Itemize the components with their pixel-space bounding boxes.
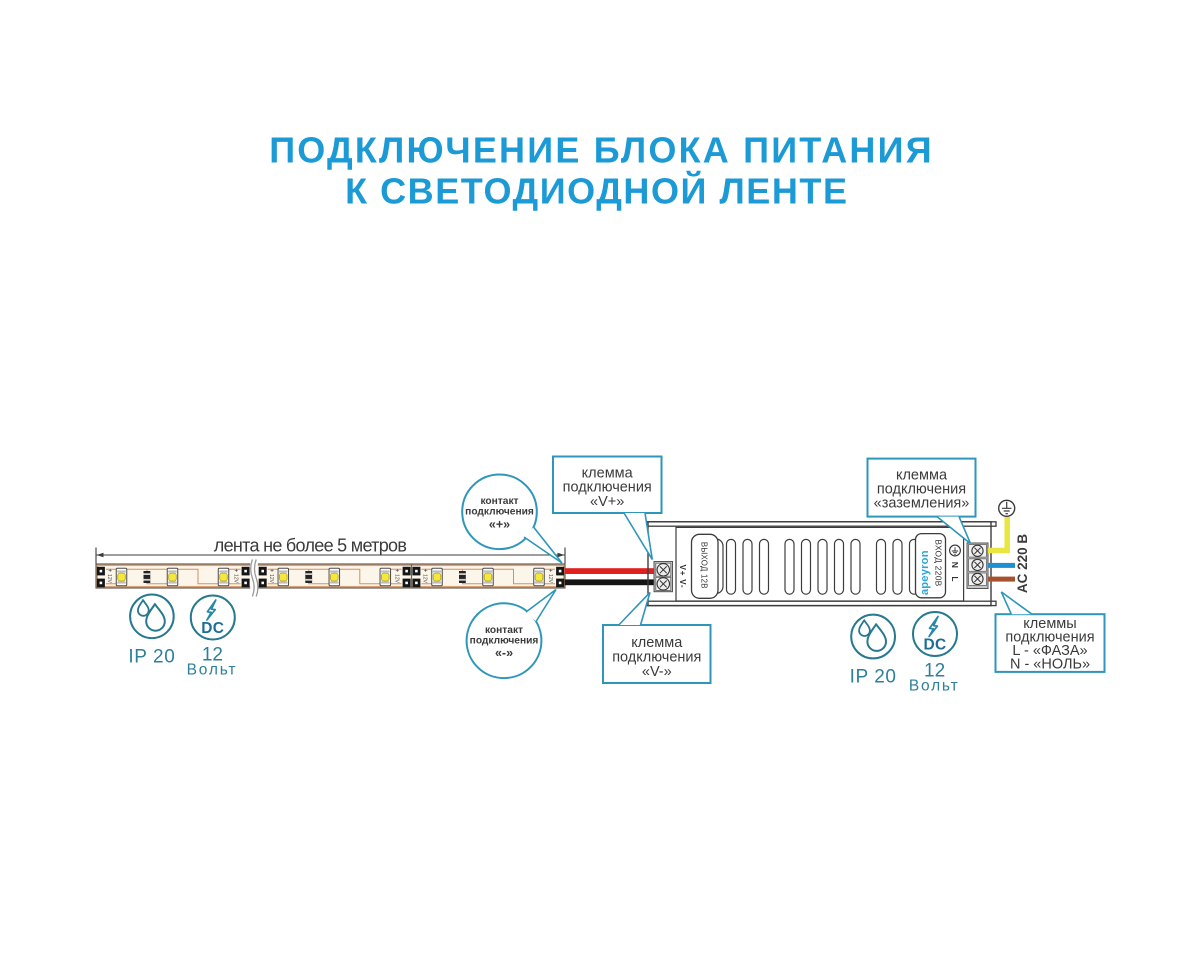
svg-text:12V: 12V [106, 574, 112, 584]
svg-text:12V: 12V [393, 574, 399, 584]
svg-text:контакт: контакт [480, 496, 518, 507]
svg-text:N: N [950, 562, 960, 568]
svg-text:L: L [950, 576, 960, 581]
svg-text:IP 20: IP 20 [128, 646, 175, 667]
svg-text:«V-»: «V-» [642, 664, 672, 680]
svg-text:ПОДКЛЮЧЕНИЕ БЛОКА ПИТАНИЯ: ПОДКЛЮЧЕНИЕ БЛОКА ПИТАНИЯ [269, 130, 934, 171]
svg-text:подключения: подключения [470, 635, 539, 646]
svg-text:12V: 12V [547, 574, 553, 584]
svg-text:IP 20: IP 20 [850, 666, 897, 687]
svg-text:V+ V-: V+ V- [678, 565, 687, 589]
svg-text:12V: 12V [268, 574, 274, 584]
svg-text:12V: 12V [422, 574, 428, 584]
svg-text:apeyron: apeyron [919, 550, 931, 595]
svg-text:подключения: подключения [465, 507, 534, 518]
svg-text:12V: 12V [232, 574, 238, 584]
svg-text:N - «НОЛЬ»: N - «НОЛЬ» [1010, 657, 1090, 673]
svg-text:ВХОД 220В: ВХОД 220В [933, 539, 943, 586]
svg-text:контакт: контакт [485, 625, 523, 636]
svg-text:DC: DC [924, 636, 947, 653]
svg-text:DC: DC [201, 620, 224, 637]
svg-text:«V+»: «V+» [590, 494, 624, 510]
svg-text:AC 220 В: AC 220 В [1015, 534, 1030, 594]
svg-text:Вольт: Вольт [909, 677, 960, 694]
svg-text:ВЫХОД 12В: ВЫХОД 12В [699, 542, 708, 589]
svg-text:«-»: «-» [495, 646, 513, 660]
svg-text:«+»: «+» [489, 517, 510, 531]
svg-text:К СВЕТОДИОДНОЙ ЛЕНТЕ: К СВЕТОДИОДНОЙ ЛЕНТЕ [345, 170, 848, 212]
svg-text:лента не более 5 метров: лента не более 5 метров [214, 536, 407, 556]
svg-text:Вольт: Вольт [187, 662, 238, 679]
svg-text:«заземления»: «заземления» [874, 496, 970, 512]
